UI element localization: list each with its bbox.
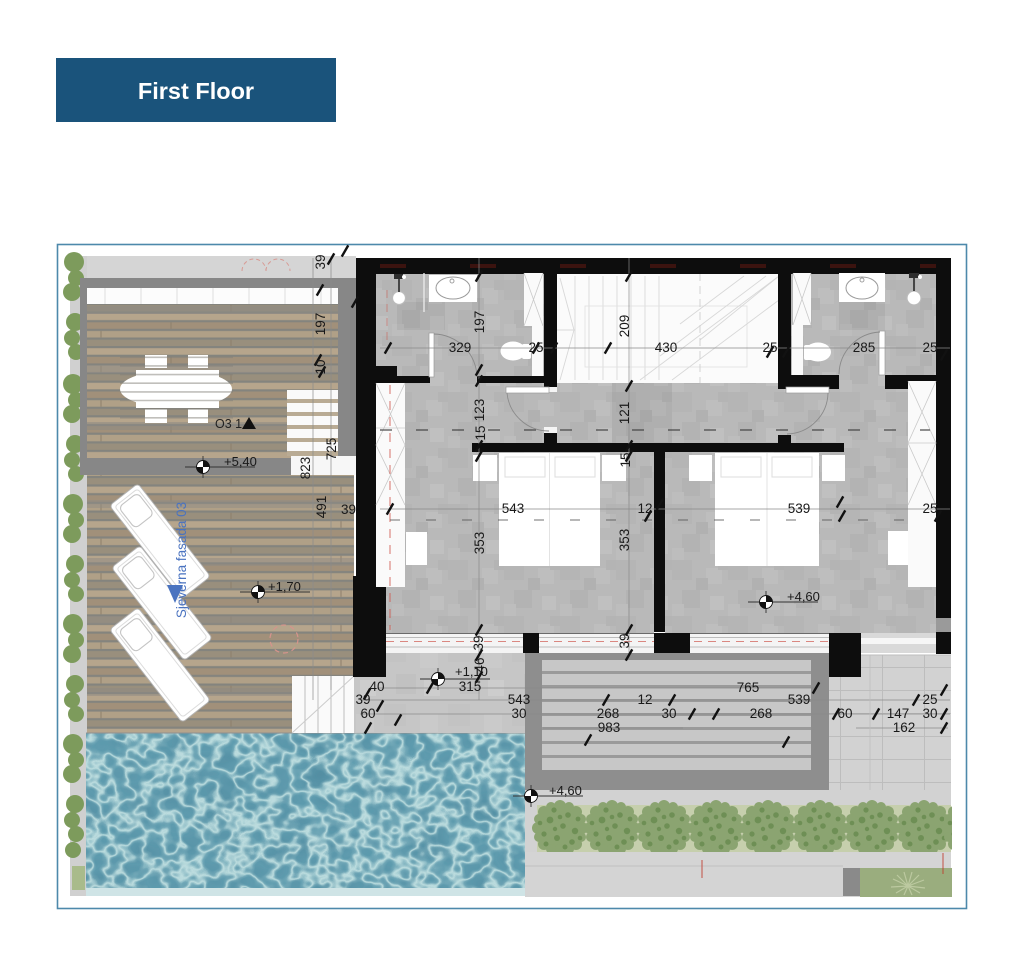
svg-text:30: 30 [922, 706, 937, 721]
svg-text:+4,60: +4,60 [787, 589, 820, 604]
svg-text:543: 543 [502, 501, 525, 516]
svg-text:25: 25 [922, 692, 937, 707]
svg-text:39: 39 [341, 502, 356, 517]
svg-text:60: 60 [360, 706, 375, 721]
svg-text:268: 268 [750, 706, 773, 721]
svg-text:209: 209 [617, 315, 632, 338]
svg-text:765: 765 [737, 680, 760, 695]
svg-text:39: 39 [313, 254, 328, 269]
svg-text:539: 539 [788, 692, 811, 707]
svg-text:60: 60 [837, 706, 852, 721]
svg-text:15: 15 [618, 452, 633, 467]
svg-text:46: 46 [472, 657, 487, 672]
svg-text:268: 268 [597, 706, 620, 721]
svg-text:197: 197 [313, 313, 328, 336]
svg-text:329: 329 [449, 340, 472, 355]
svg-text:121: 121 [617, 402, 632, 425]
svg-text:10: 10 [313, 359, 328, 374]
svg-text:First Floor: First Floor [138, 78, 254, 104]
svg-text:147: 147 [887, 706, 910, 721]
svg-text:823: 823 [298, 457, 313, 480]
svg-text:40: 40 [369, 679, 384, 694]
svg-text:491: 491 [314, 496, 329, 519]
svg-text:430: 430 [655, 340, 678, 355]
svg-text:15: 15 [473, 425, 488, 440]
svg-text:162: 162 [893, 720, 916, 735]
svg-text:353: 353 [617, 529, 632, 552]
svg-text:353: 353 [472, 532, 487, 555]
svg-text:Sjeverna fasada 03: Sjeverna fasada 03 [174, 502, 189, 618]
svg-text:25: 25 [922, 340, 937, 355]
svg-text:30: 30 [661, 706, 676, 721]
svg-text:539: 539 [788, 501, 811, 516]
svg-text:+5,40: +5,40 [224, 454, 257, 469]
svg-text:25: 25 [922, 501, 937, 516]
svg-text:+4,60: +4,60 [549, 783, 582, 798]
svg-text:39: 39 [355, 692, 370, 707]
svg-text:315: 315 [459, 679, 482, 694]
svg-text:197: 197 [472, 311, 487, 334]
svg-text:30: 30 [511, 706, 526, 721]
svg-text:543: 543 [508, 692, 531, 707]
svg-text:25: 25 [762, 340, 777, 355]
svg-text:123: 123 [472, 399, 487, 422]
svg-text:39: 39 [617, 633, 632, 648]
svg-text:12: 12 [637, 501, 652, 516]
svg-text:39: 39 [471, 635, 486, 650]
svg-text:25: 25 [528, 340, 543, 355]
svg-text:O3 1: O3 1 [215, 417, 242, 431]
svg-text:725: 725 [324, 438, 339, 461]
svg-text:285: 285 [853, 340, 876, 355]
svg-text:12: 12 [637, 692, 652, 707]
svg-text:983: 983 [598, 720, 621, 735]
svg-text:+1,70: +1,70 [268, 579, 301, 594]
